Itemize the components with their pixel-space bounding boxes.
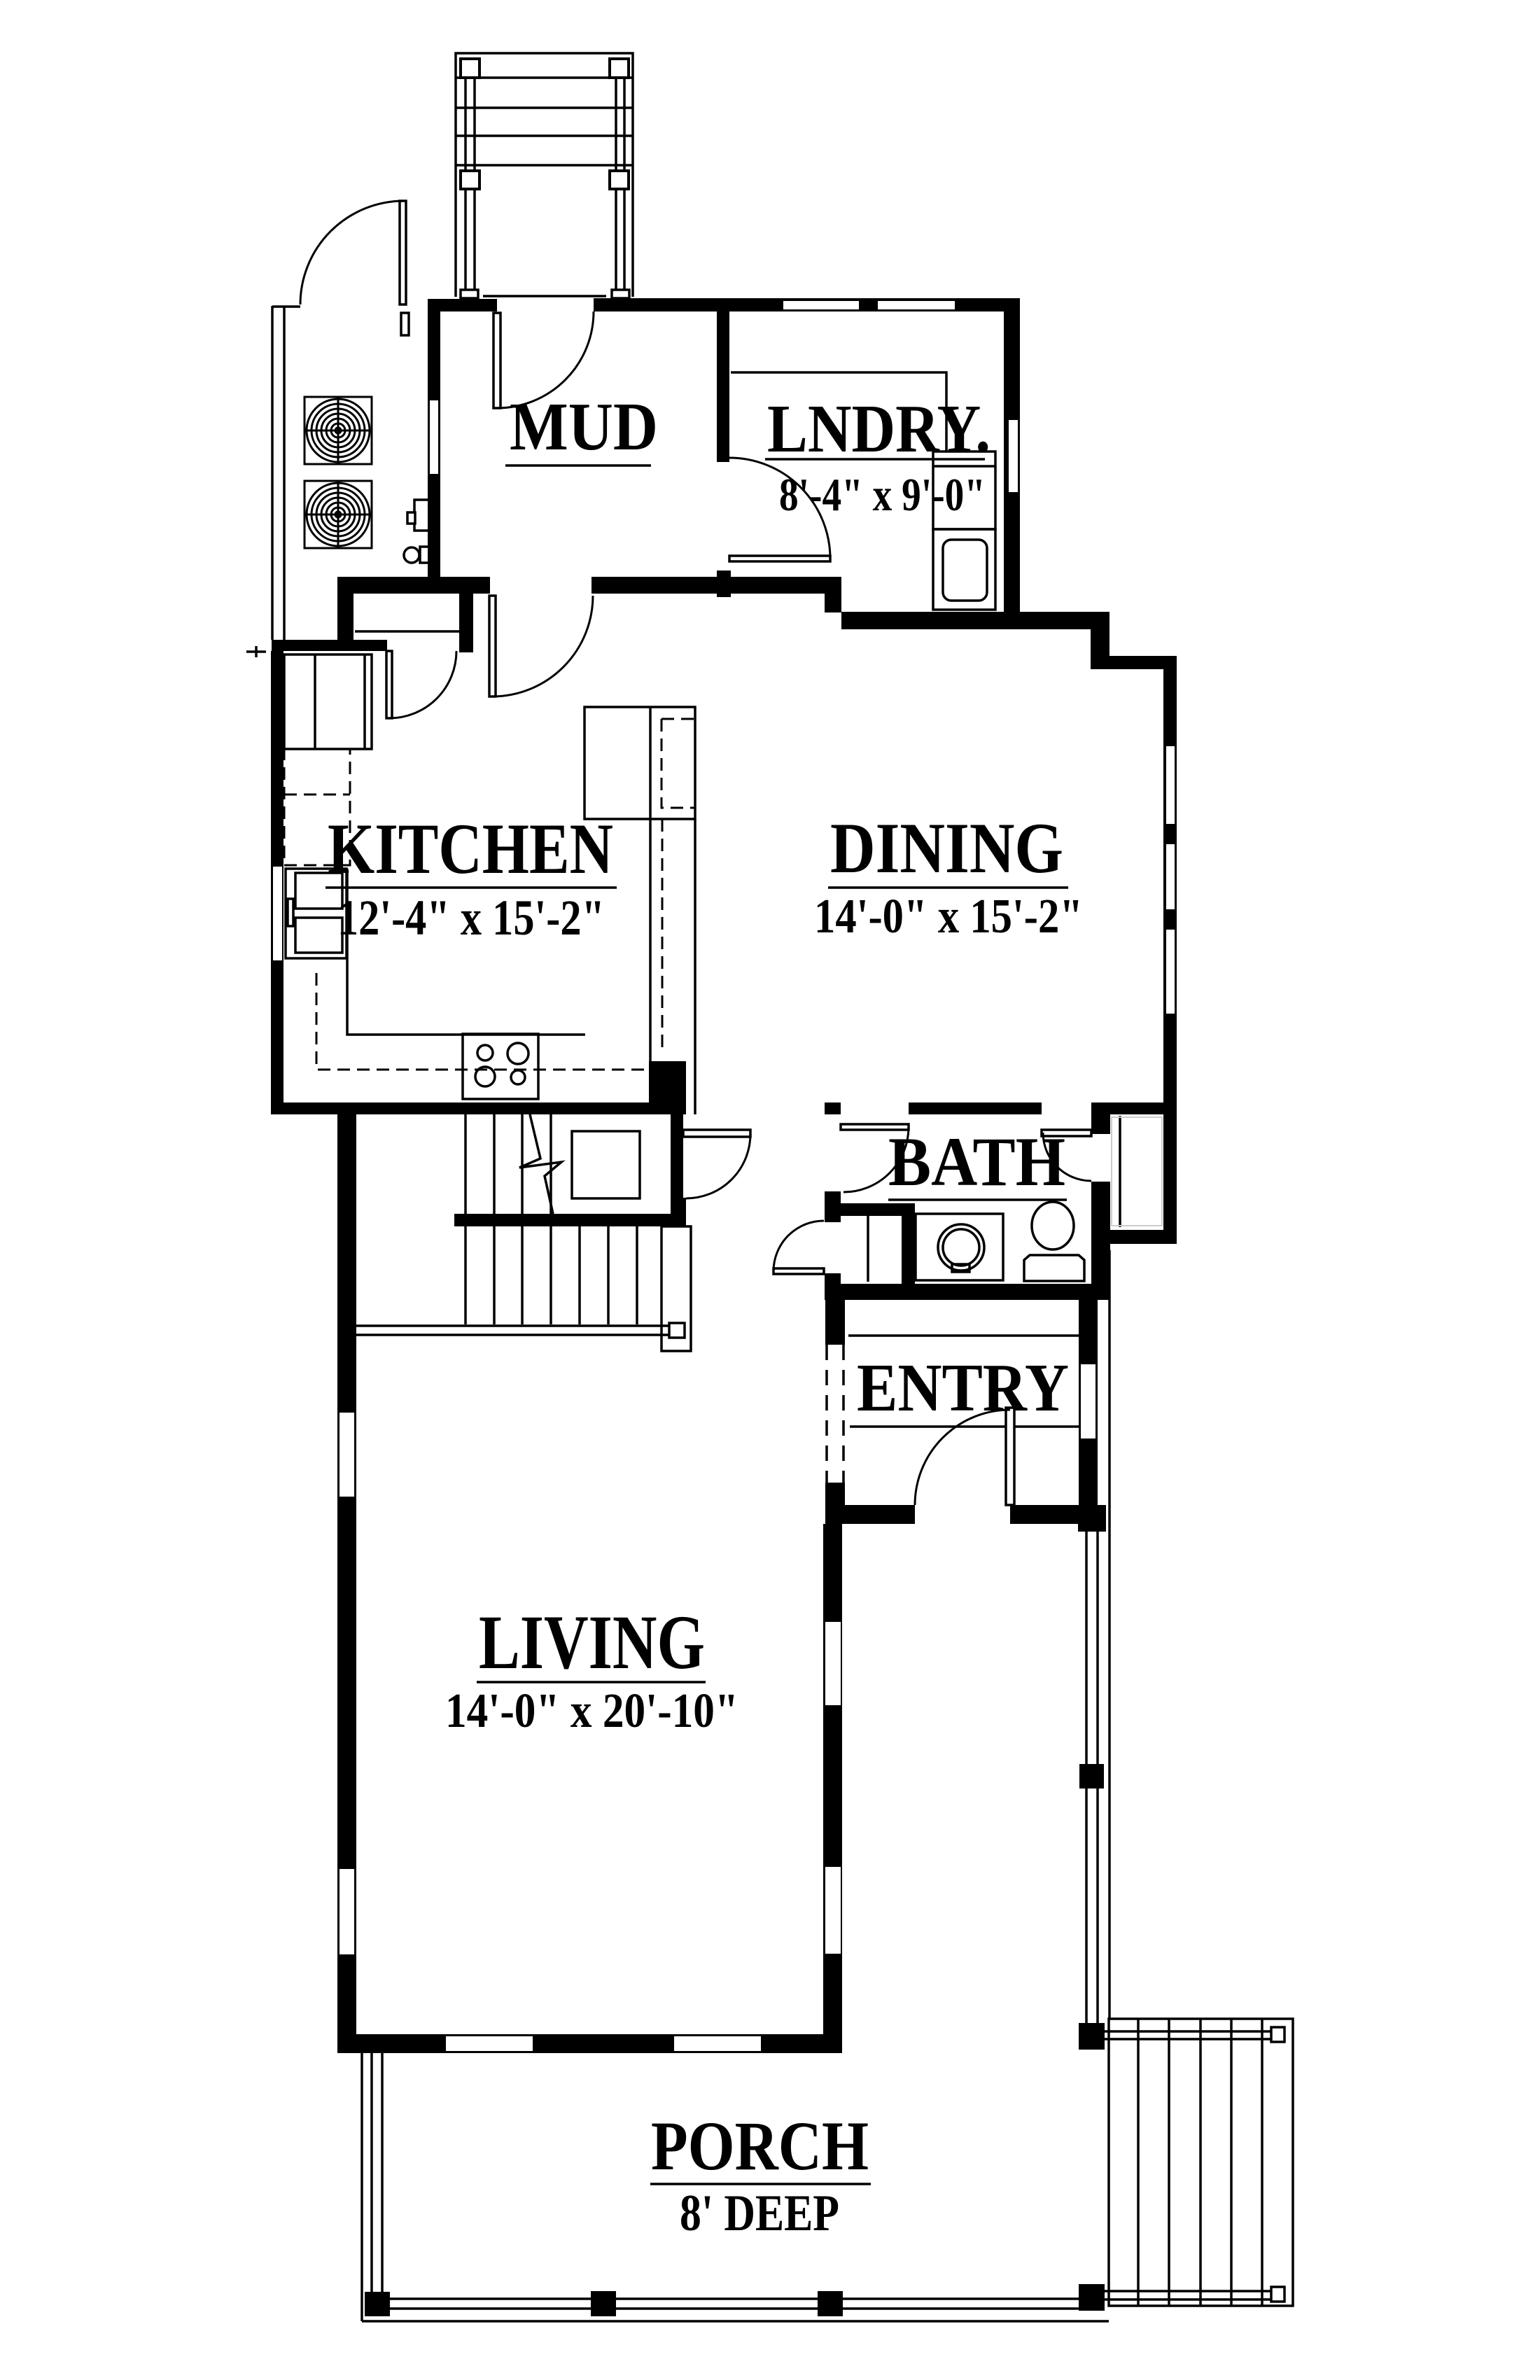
svg-text:LNDRY.: LNDRY. <box>767 391 990 467</box>
svg-text:ENTRY: ENTRY <box>857 1350 1069 1425</box>
svg-text:PORCH: PORCH <box>651 2107 869 2185</box>
svg-text:LIVING: LIVING <box>479 1599 705 1685</box>
svg-text:14'-0" x 15'-2": 14'-0" x 15'-2" <box>814 890 1083 944</box>
svg-text:14'-0" x 20'-10": 14'-0" x 20'-10" <box>445 1684 738 1738</box>
svg-text:8' DEEP: 8' DEEP <box>680 2185 839 2242</box>
svg-text:12'-4" x 15'-2": 12'-4" x 15'-2" <box>337 890 605 946</box>
svg-text:KITCHEN: KITCHEN <box>328 809 613 889</box>
svg-text:DINING: DINING <box>830 808 1063 888</box>
svg-text:8'-4" x 9'-0": 8'-4" x 9'-0" <box>779 469 986 521</box>
svg-text:MUD: MUD <box>510 389 658 465</box>
svg-text:BATH: BATH <box>888 1123 1065 1200</box>
